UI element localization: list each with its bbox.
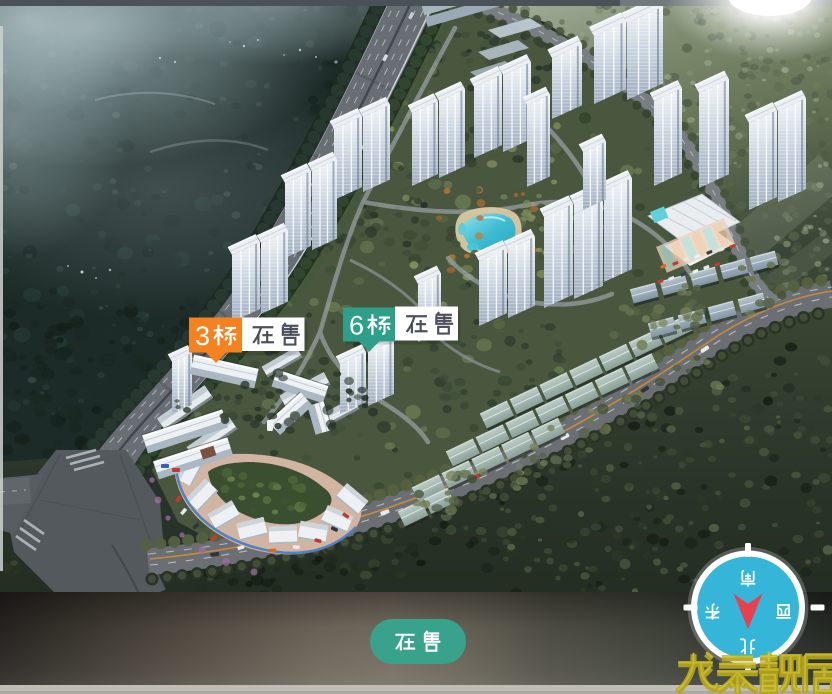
svg-text:6: 6	[349, 311, 364, 341]
svg-text:3: 3	[195, 321, 210, 351]
